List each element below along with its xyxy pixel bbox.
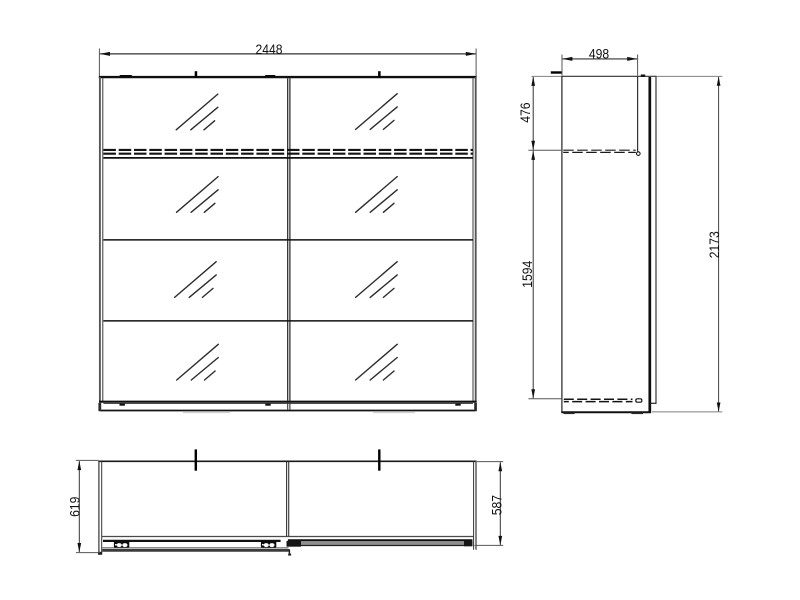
svg-text:498: 498 xyxy=(589,46,609,62)
svg-text:2448: 2448 xyxy=(256,41,283,57)
svg-text:2173: 2173 xyxy=(706,231,722,258)
svg-text:587: 587 xyxy=(489,495,505,515)
svg-text:619: 619 xyxy=(67,497,83,517)
svg-text:476: 476 xyxy=(517,102,533,122)
svg-text:1594: 1594 xyxy=(519,261,535,288)
